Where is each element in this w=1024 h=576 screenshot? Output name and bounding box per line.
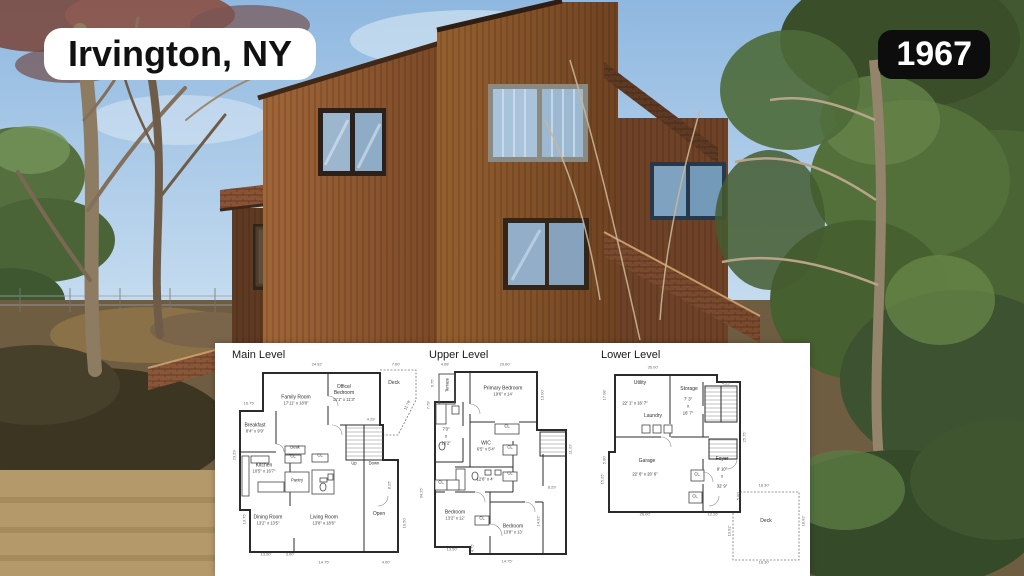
- dim: 20.60': [500, 362, 511, 367]
- dim: 12.26': [708, 512, 719, 517]
- bath1-x: x: [445, 433, 447, 438]
- dim: 13.00': [540, 390, 545, 401]
- floorplan-upper-level: Upper Level: [425, 343, 595, 576]
- label-cl-a: CL: [504, 423, 509, 428]
- upper-level-drawing: [425, 343, 595, 576]
- foyer-dim2: 32' 9": [717, 483, 727, 488]
- label-desk: Desk: [290, 444, 300, 449]
- dim: 8.25': [387, 481, 392, 490]
- dim: 11.22': [568, 444, 573, 454]
- room-bath2: 12'6" x 4': [477, 476, 494, 481]
- year-badge: 1967: [878, 30, 990, 79]
- dim: 13.92': [727, 526, 732, 537]
- room-garage: Garage: [639, 458, 656, 464]
- dim: 23.29': [232, 450, 237, 461]
- location-badge: Irvington, NY: [44, 28, 316, 80]
- bath1-dim2: 16'2": [441, 440, 450, 445]
- dim: 4.29': [367, 417, 376, 422]
- room-foyer: Foyer: [716, 456, 729, 462]
- dim: 18.30': [759, 560, 770, 565]
- room-deck-lower: Deck: [760, 518, 771, 524]
- dim: 17.08': [602, 390, 607, 401]
- floorplan-main-level: Main Level: [228, 343, 428, 576]
- dim: 24.92': [312, 362, 323, 367]
- storage-x: x: [687, 403, 689, 408]
- dim: 34.25': [419, 488, 424, 499]
- main-upper-window: [488, 84, 588, 162]
- dim: 7.79': [426, 401, 431, 410]
- dim: 18.92': [801, 516, 806, 527]
- dim: 7.00': [392, 362, 401, 367]
- dim: 5.00': [602, 456, 607, 465]
- label-cl-d: CL: [438, 479, 443, 484]
- room-deck-main: Deck: [388, 380, 399, 386]
- floorplan-lower-level: Lower Level: [597, 343, 810, 576]
- bath1-dim1: 7'3": [443, 426, 450, 431]
- dim: 18.30': [759, 483, 770, 488]
- storage-dim2: 16' 7": [683, 410, 693, 415]
- dim: 6.75': [430, 379, 435, 388]
- utility-dims: 22' 1" x 16' 7": [622, 400, 647, 405]
- main-lower-window: [503, 218, 589, 290]
- dim: 5.00': [736, 492, 741, 501]
- label-cl1-lower: CL: [694, 471, 699, 476]
- dim: 4.08': [441, 362, 450, 367]
- dim: 8.29': [548, 485, 557, 490]
- composite-image: Irvington, NY 1967 Main Level: [0, 0, 1024, 576]
- label-cl1: CL: [290, 453, 295, 458]
- dim: 13.50': [447, 547, 458, 552]
- label-cl-b: CL: [507, 444, 512, 449]
- dim: 4.25': [722, 381, 731, 386]
- label-cl2: CL: [317, 452, 322, 457]
- dim: 25.75': [742, 432, 747, 443]
- gable-window: [318, 108, 386, 176]
- room-office: Office/ Bedroom: [329, 384, 359, 397]
- dim: 26.00': [640, 512, 651, 517]
- room-storage: Storage: [680, 386, 698, 392]
- dim: 4.75': [470, 544, 475, 553]
- dim: 16.75': [244, 401, 255, 406]
- clerestory-window: [650, 162, 726, 220]
- dim: 14.75': [319, 560, 330, 565]
- label-open: Open: [373, 511, 385, 517]
- room-laundry: Laundry: [644, 413, 662, 419]
- dim: 13.50': [261, 552, 272, 557]
- label-cl-c: CL: [507, 470, 512, 475]
- label-down: Down: [369, 460, 380, 465]
- dim: 4.00': [382, 560, 391, 565]
- dim: 14.92': [536, 516, 541, 527]
- dim: 15.25': [600, 474, 605, 485]
- dim: 14.75': [502, 559, 513, 564]
- label-cl2-lower: CL: [692, 493, 697, 498]
- foyer-x: x: [721, 473, 723, 478]
- label-pantry: Pantry: [291, 477, 303, 482]
- label-cl-e: CL: [479, 515, 484, 520]
- garage-dims: 22' 6" x 20' 6": [632, 471, 657, 476]
- storage-dim1: 7' 3": [684, 396, 692, 401]
- foyer-dim1: 9' 10": [717, 466, 727, 471]
- dim: 19.50': [402, 518, 407, 529]
- dim: 13.75': [242, 514, 247, 525]
- floorplan-panel: Main Level: [215, 343, 810, 576]
- room-utility: Utility: [634, 380, 646, 386]
- lower-level-drawing: [597, 343, 810, 576]
- dim: 35.00': [648, 365, 659, 370]
- room-terrace: Terrace: [444, 378, 449, 392]
- dim: 3.00': [286, 552, 295, 557]
- label-up: Up: [351, 460, 356, 465]
- main-level-drawing: [228, 343, 428, 576]
